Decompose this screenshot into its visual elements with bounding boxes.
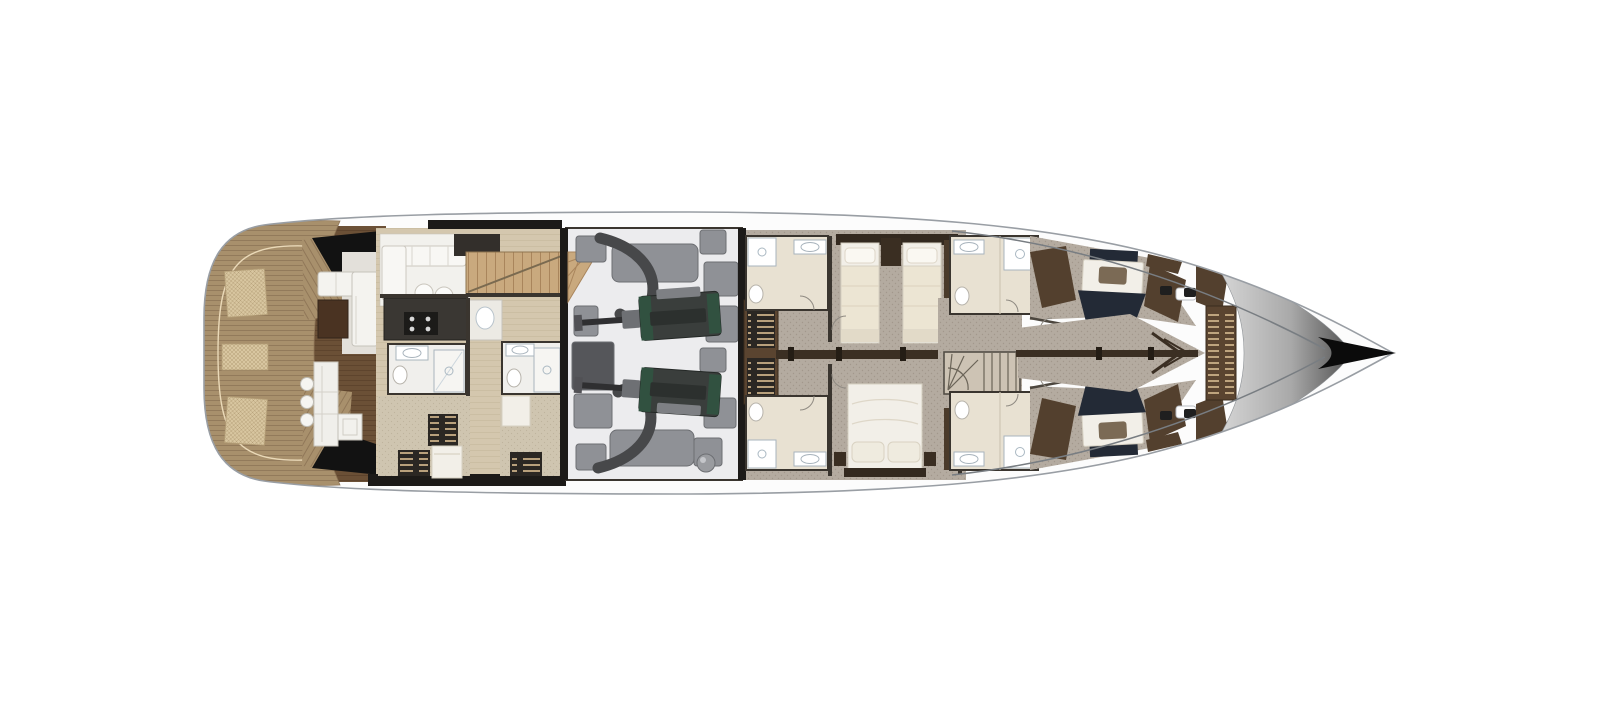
- shower: [534, 348, 560, 392]
- cleat: [1160, 286, 1172, 295]
- cooktop: [404, 312, 438, 335]
- yacht-floorplan-canvas: [0, 0, 1600, 713]
- dinette-bench: [382, 246, 406, 300]
- crew-cabin-lower-left: [378, 396, 470, 478]
- appliance: [338, 414, 362, 440]
- crew-wall: [466, 298, 470, 396]
- bar-stool: [301, 396, 314, 409]
- nightstand: [881, 238, 901, 266]
- bar-counter: [314, 362, 338, 446]
- bar-stool: [301, 378, 314, 391]
- forward-bed: [1076, 248, 1148, 325]
- guest-bathroom-forward-upper: [950, 236, 1038, 314]
- toilet: [507, 369, 521, 387]
- equipment-box: [574, 394, 612, 428]
- midship-guest-area: [738, 228, 966, 480]
- pillow: [852, 442, 884, 462]
- hull-trim-strip-top: [428, 220, 562, 229]
- nightstand: [924, 452, 936, 466]
- corridor-rail: [1016, 350, 1198, 357]
- equipment-box: [704, 262, 738, 296]
- shower: [748, 238, 776, 266]
- headboard: [844, 468, 926, 477]
- sun-pad-hatch: [224, 269, 267, 318]
- sun-pad-hatch: [224, 397, 267, 446]
- equipment-box: [700, 230, 726, 254]
- pillow: [888, 442, 920, 462]
- bar-stool: [301, 414, 314, 427]
- guest-bathroom-midship-lower: [746, 396, 828, 470]
- expansion-sphere: [697, 454, 715, 472]
- crew-berth: [432, 446, 462, 478]
- main-staircase: [944, 352, 1020, 394]
- crew-wall: [380, 294, 468, 298]
- corridor-rail: [776, 350, 940, 359]
- crew-quarters: [368, 220, 566, 486]
- yacht-lower-deck-plan: [0, 0, 1600, 713]
- coffee-table: [318, 300, 348, 338]
- crew-bathroom-left: [388, 344, 466, 394]
- nightstand: [834, 452, 846, 466]
- twin-bed: [903, 243, 941, 343]
- cabin-wall: [828, 236, 832, 342]
- toilet: [955, 287, 969, 305]
- bulkhead-aft: [560, 228, 568, 480]
- crew-bathroom-right: [502, 342, 562, 394]
- cabin-wall: [828, 364, 832, 476]
- guest-bathroom-midship-upper: [746, 236, 828, 310]
- guest-bathroom-forward-lower: [950, 392, 1038, 470]
- sun-pad-hatch: [222, 344, 268, 370]
- toilet: [393, 366, 407, 384]
- crew-cabin-lower-right: [500, 396, 562, 476]
- anchor-locker-ladder: [1206, 306, 1236, 400]
- crew-berth: [502, 396, 530, 426]
- toilet: [749, 285, 763, 303]
- equipment-box: [700, 348, 726, 372]
- engine-room: [560, 228, 742, 480]
- twin-bed: [841, 243, 879, 343]
